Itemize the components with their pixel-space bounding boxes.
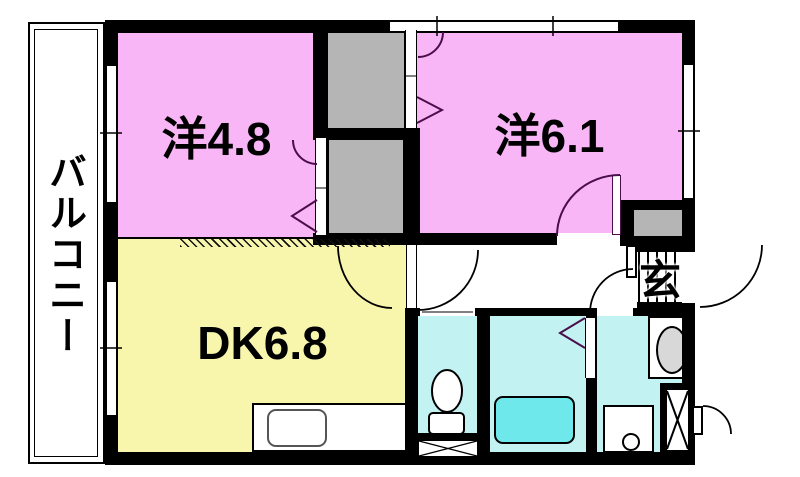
- bathroom-folding-door: [585, 318, 596, 378]
- balcony-label: バルコニー: [42, 124, 86, 384]
- washroom-door-opening: [597, 308, 633, 316]
- window-west2-right: [682, 65, 695, 198]
- west2-door-opening: [557, 233, 620, 245]
- washer-drain-icon: [622, 433, 640, 451]
- room-label-dining-kitchen: DK6.8: [118, 239, 407, 447]
- closet-top: [326, 31, 406, 130]
- room-label-entrance: 玄: [634, 248, 686, 306]
- washing-machine-pan: [603, 405, 654, 453]
- floor-plan: 洋4.8 洋6.1 DK6.8 玄 バルコニー: [0, 0, 800, 477]
- window-west1-balcony: [105, 66, 118, 202]
- window-west2-top: [390, 20, 618, 33]
- window-dk-balcony: [105, 282, 118, 415]
- pipe-shaft-box: [660, 383, 695, 457]
- room-label-western-6-1: 洋6.1: [417, 33, 682, 233]
- duct-box: [418, 440, 478, 457]
- entrance-door-arc: [700, 245, 762, 307]
- ps-door-leaf: [692, 406, 703, 435]
- dk-hall-partition: [406, 245, 417, 308]
- closet-bottom-door: [315, 138, 327, 235]
- room-label-western-4-8: 洋4.8: [118, 33, 315, 238]
- wall-toilet-bottom: [413, 433, 478, 440]
- toilet-room: [418, 316, 478, 433]
- bathtub: [494, 396, 575, 444]
- ps-door-arc: [703, 406, 731, 434]
- closet-bottom: [327, 138, 405, 237]
- wall-closet-divider: [313, 128, 420, 140]
- hall-door-arc: [418, 250, 478, 310]
- wall-bottom: [105, 452, 695, 465]
- wall-toilet-bath: [477, 316, 490, 457]
- toilet-door-opening: [420, 308, 475, 316]
- closet-top-door: [405, 30, 417, 128]
